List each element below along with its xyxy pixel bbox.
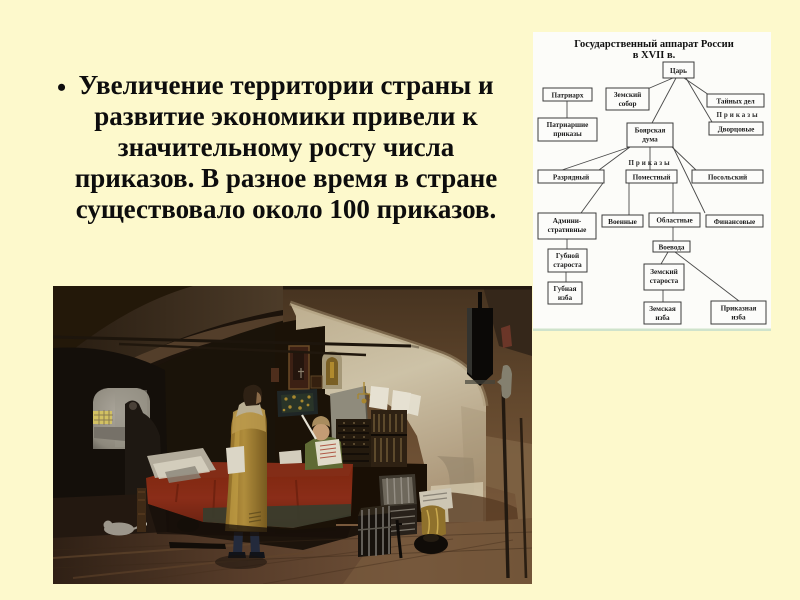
- svg-text:староста: староста: [553, 261, 582, 269]
- svg-text:в XVII в.: в XVII в.: [633, 50, 676, 61]
- svg-text:Финансовые: Финансовые: [714, 218, 755, 226]
- svg-text:Посольский: Посольский: [708, 174, 747, 182]
- svg-text:изба: изба: [558, 294, 573, 302]
- svg-text:Тайных дел: Тайных дел: [716, 98, 754, 106]
- svg-text:староста: староста: [650, 277, 679, 285]
- svg-text:изба: изба: [655, 314, 670, 322]
- svg-text:изба: изба: [731, 314, 746, 322]
- svg-text:дума: дума: [642, 136, 658, 144]
- svg-text:Админи-: Админи-: [553, 217, 582, 225]
- svg-text:Поместный: Поместный: [633, 174, 671, 182]
- svg-text:Военные: Военные: [608, 218, 637, 226]
- svg-text:стративные: стративные: [548, 226, 587, 234]
- svg-text:собор: собор: [619, 100, 637, 108]
- svg-text:Областные: Областные: [656, 217, 692, 225]
- svg-text:Боярская: Боярская: [635, 127, 666, 135]
- svg-text:Государственный аппарат России: Государственный аппарат России: [574, 39, 734, 50]
- svg-text:Губной: Губной: [556, 252, 579, 260]
- svg-text:Воевода: Воевода: [658, 244, 684, 252]
- svg-text:Земская: Земская: [649, 305, 676, 313]
- svg-text:Губная: Губная: [553, 285, 576, 293]
- svg-text:приказы: приказы: [553, 130, 582, 138]
- svg-text:Приказы: Приказы: [716, 111, 759, 119]
- svg-text:Приказы: Приказы: [628, 159, 671, 167]
- svg-text:Патриарх: Патриарх: [552, 92, 584, 100]
- svg-text:Разрядный: Разрядный: [553, 174, 589, 182]
- svg-text:Приказная: Приказная: [721, 305, 757, 313]
- svg-text:Патриаршие: Патриаршие: [547, 121, 589, 129]
- svg-text:Дворцовые: Дворцовые: [718, 126, 755, 134]
- svg-text:Земский: Земский: [614, 91, 642, 99]
- svg-text:Царь: Царь: [670, 67, 687, 75]
- svg-text:Земский: Земский: [650, 268, 678, 276]
